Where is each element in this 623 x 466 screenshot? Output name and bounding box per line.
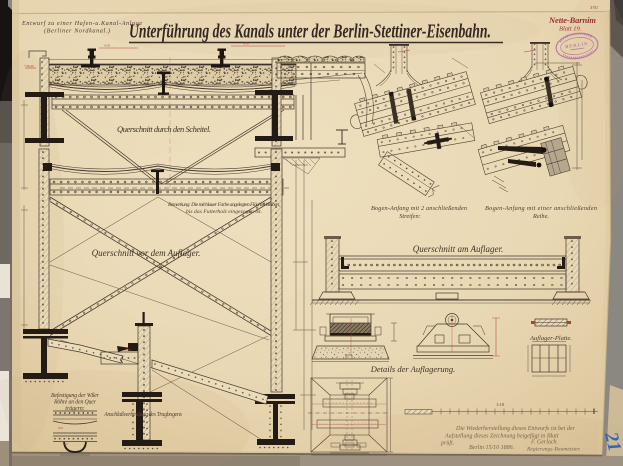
svg-text:Die Wiederherstellung dieses E: Die Wiederherstellung dieses Entwurfs is… (455, 425, 576, 432)
svg-text:Röhre an den Quer: Röhre an den Quer (53, 400, 97, 406)
svg-text:Bemerkung: Die mit blauer Farb: Bemerkung: Die mit blauer Farbe angelegt… (168, 202, 281, 208)
svg-text:prüft.: prüft. (440, 440, 454, 447)
svg-text:1:10: 1:10 (496, 402, 505, 407)
svg-text:bis das Futterholz eingezogen: bis das Futterholz eingezogen ist. (186, 209, 262, 215)
svg-text:Unterführung des Kanals unter: Unterführung des Kanals unter der Berlin… (129, 22, 491, 43)
svg-text:4.50: 4.50 (104, 44, 110, 48)
svg-text:Blatt 19.: Blatt 19. (559, 26, 582, 33)
svg-text:Querschnitt vor dem Aufl: Querschnitt vor dem Auflager. (92, 248, 201, 258)
svg-text:Nette-Barnim: Nette-Barnim (548, 15, 596, 25)
svg-text:Aufstellung dieses Zeichnung b: Aufstellung dieses Zeichnung beigefügt i… (444, 433, 559, 440)
svg-text:(Berliner Nordkanal.): (Berliner Nordkanal.) (44, 28, 110, 35)
svg-text:Bogen-Anfang mit 2 anschließen: Bogen-Anfang mit 2 anschließenden (371, 205, 467, 212)
svg-text:XVII.: XVII. (589, 5, 599, 10)
svg-text:4.50: 4.50 (243, 42, 249, 46)
svg-text:Auflager-Platte.: Auflager-Platte. (529, 335, 572, 342)
svg-text:Befestigung der Wßer: Befestigung der Wßer (51, 392, 100, 399)
svg-text:F. Gerlach.: F. Gerlach. (530, 440, 558, 446)
svg-text:Streifen:: Streifen: (399, 213, 420, 220)
svg-text:Berlin 15/10 1886.: Berlin 15/10 1886. (469, 445, 514, 451)
svg-text:Entwurf zu einer Hafen-u.Kanal: Entwurf zu einer Hafen-u.Kanal-Anlage (21, 20, 142, 27)
svg-text:Details der Auflagerung.: Details der Auflagerung. (370, 364, 456, 374)
svg-text:Reihe.: Reihe. (532, 213, 549, 220)
svg-text:Anschlußverbindung des Tragbog: Anschlußverbindung des Tragbogens (103, 411, 183, 418)
svg-text:Bogen-Anfang mit einer anschli: Bogen-Anfang mit einer anschließenden (485, 205, 597, 212)
svg-text:trägern:: trägern: (65, 406, 84, 412)
svg-text:Querschnitt durch den Scheitel: Querschnitt durch den Scheitel. (117, 124, 211, 134)
svg-text:Regierungs-Baumeister.: Regierungs-Baumeister. (526, 447, 581, 453)
svg-text:Querschnitt am Auflager.: Querschnitt am Auflager. (413, 244, 504, 254)
